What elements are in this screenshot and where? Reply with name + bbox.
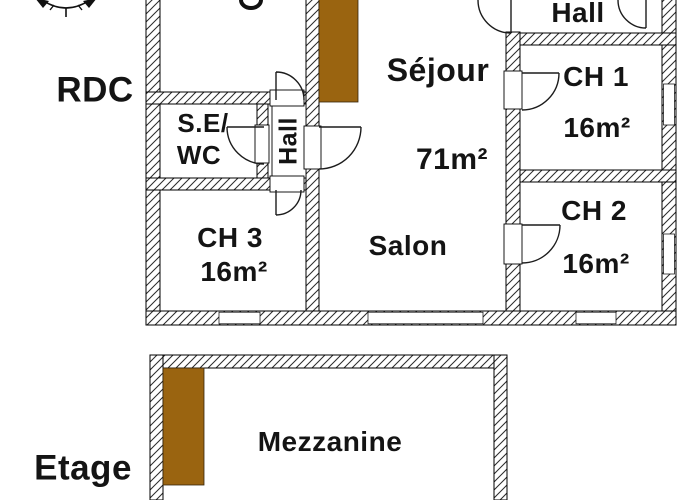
- door-opening-sejour: [304, 126, 321, 169]
- door-ch3: [276, 190, 301, 215]
- door-halltop-right: [618, 0, 646, 28]
- floor-label-etage: Etage: [34, 451, 132, 486]
- window-ch2-bottom: [576, 312, 616, 324]
- stairs-rdc: [319, 0, 358, 102]
- door-ch2: [522, 225, 560, 263]
- wall-halltop-ch1: [506, 33, 676, 45]
- room-label-ch2: CH 2: [561, 197, 627, 225]
- floorplan-page: RDC Etage Séjour 71m² Salon Hall Hall S.…: [0, 0, 700, 500]
- wall-rdc-left: [146, 0, 160, 325]
- room-label-mezzanine: Mezzanine: [258, 428, 403, 456]
- room-label-ch1: CH 1: [563, 63, 629, 91]
- room-label-sejour: Séjour: [387, 54, 490, 86]
- door-opening-corridor-top: [270, 90, 304, 106]
- stairs-etage: [163, 368, 204, 485]
- room-label-salon: Salon: [369, 232, 448, 260]
- door-opening-sewc: [255, 125, 269, 163]
- wall-rdc-right: [662, 0, 676, 325]
- room-label-hall-corridor: Hall: [277, 117, 302, 165]
- room-area-sejour: 71m²: [416, 145, 488, 175]
- wall-ch1-ch2: [506, 170, 676, 182]
- cutoff-letter-mark: [241, 0, 261, 8]
- room-label-sewc-line1: S.E/: [177, 110, 228, 136]
- door-halltop-left: [478, 0, 511, 33]
- door-opening-ch2: [504, 224, 522, 264]
- floor-label-rdc: RDC: [56, 73, 133, 108]
- wall-mezzanine-top: [150, 355, 507, 368]
- window-ch3: [219, 312, 260, 324]
- wall-mezzanine-right: [494, 355, 507, 500]
- room-area-ch2: 16m²: [562, 250, 629, 278]
- door-opening-corridor-bottom: [270, 176, 304, 192]
- door-sejour: [319, 127, 361, 169]
- door-opening-ch1: [504, 71, 522, 109]
- window-ch1-right: [664, 84, 675, 125]
- compass-icon: [35, 0, 97, 17]
- room-area-ch1: 16m²: [563, 114, 630, 142]
- room-label-ch3: CH 3: [197, 224, 263, 252]
- window-salon: [368, 312, 483, 324]
- door-ch1: [522, 73, 559, 110]
- room-label-sewc-line2: WC: [177, 142, 221, 168]
- room-area-ch3: 16m²: [200, 258, 267, 286]
- window-ch2-right: [664, 234, 675, 274]
- room-label-hall-top: Hall: [551, 0, 604, 27]
- wall-mezzanine-left: [150, 355, 163, 500]
